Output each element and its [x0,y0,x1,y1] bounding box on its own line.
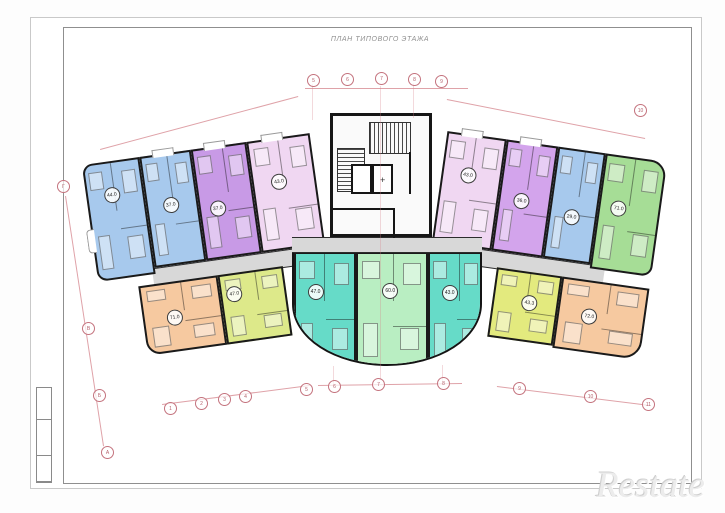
furniture [462,328,477,350]
partition-wall [607,285,612,313]
axis-bubble: Г [57,180,70,193]
balcony [461,128,484,139]
area-label: 47.0 [308,284,324,300]
furniture [567,283,590,297]
balcony [519,136,542,147]
furniture [197,156,213,175]
furniture [332,328,348,350]
center-apartments: 47.060.043.0 [292,250,482,366]
building-core: + [330,113,432,237]
area-label: 37.0 [162,196,180,214]
furniture [128,235,146,260]
furniture [235,216,252,239]
screenshot-root: ПЛАН ТИПОВОГО ЭТАЖА 44.037.037.043.071.0… [0,0,725,513]
furniture [608,163,625,183]
title-block-cell [37,456,51,482]
corridor [292,237,482,253]
furniture [363,323,378,357]
balcony [261,132,284,143]
axis-bubble: 8 [408,73,421,86]
balcony [151,147,174,158]
furniture [440,200,457,234]
title-block-cell [37,388,51,420]
furniture [433,261,447,279]
furniture [630,234,649,258]
apartment: 47.0 [294,252,356,366]
area-label: 37.0 [209,200,227,218]
partition-wall [578,152,585,197]
partition-wall [176,220,199,224]
furniture [230,315,246,337]
core-wall [409,152,411,194]
axis-bubble: А [101,446,114,459]
dimension-line [413,83,414,118]
furniture [400,328,419,350]
furniture [537,280,555,295]
axis-bubble: 5 [307,74,320,87]
partition-wall [457,319,482,320]
furniture [88,171,104,191]
area-label: 43.0 [270,173,288,191]
axis-bubble: 4 [239,390,252,403]
apartment: 71.0 [138,275,227,355]
partition-wall [180,282,185,310]
apartment: 43.0 [428,252,482,366]
partition-wall [228,206,253,210]
partition-wall [254,272,259,300]
furniture [263,207,281,241]
axis-bubble: 1 [164,402,177,415]
furniture [206,216,222,250]
furniture [155,223,170,257]
area-label: 72.0 [580,307,598,325]
area-label: 29.0 [562,208,580,226]
furniture [550,216,564,249]
furniture [264,312,283,327]
furniture [289,145,307,169]
partition-wall [222,147,229,192]
watermark: Restate [596,464,705,507]
furniture [598,225,615,260]
furniture [253,147,271,166]
furniture [334,263,349,285]
furniture [228,153,244,176]
axis-bubble: 11 [642,398,655,411]
core-wall [333,208,395,210]
title-block [36,387,52,483]
dimension-line [305,88,468,89]
apartment: 43.3 [487,267,562,346]
area-label: 43.0 [459,166,477,184]
furniture [464,263,478,285]
axis-bubble: 2 [195,397,208,410]
apartment: 60.0 [356,252,428,366]
furniture [98,235,115,271]
partition-wall [185,315,221,321]
furniture [562,321,583,344]
furniture [585,162,599,185]
area-label: 60.0 [382,283,398,299]
partition-wall [629,159,637,206]
area-label: 71.0 [610,200,628,218]
furniture [434,323,445,357]
furniture [536,155,551,178]
dimension-line [312,84,313,120]
furniture [500,274,517,287]
axis-bubble: 9 [513,382,526,395]
elevator-shaft [351,164,372,194]
furniture [145,163,160,182]
axis-bubble: 10 [634,104,647,117]
furniture [471,209,490,233]
axis-bubble: 3 [218,393,231,406]
furniture [449,140,466,159]
area-label: 71.0 [166,309,184,327]
furniture [152,325,171,347]
furniture [191,284,212,300]
area-label: 43.0 [442,285,458,301]
title-block-cell [37,420,51,456]
furniture [362,261,380,279]
partition-wall [527,145,534,190]
axis-bubble: 7 [375,72,388,85]
partition-wall [121,225,147,230]
area-label: 44.0 [103,186,121,204]
partition-wall [459,254,460,301]
furniture [121,169,138,194]
furniture [607,330,632,347]
furniture [616,292,640,308]
partition-wall [166,155,173,200]
partition-wall [324,254,325,301]
furniture [495,311,511,333]
partition-wall [469,199,496,204]
axis-bubble: 7 [372,378,385,391]
area-label: 36.0 [513,192,531,210]
partition-wall [326,319,354,320]
partition-wall [525,312,555,317]
apartment: 72.0 [552,276,649,360]
furniture [174,161,189,184]
furniture [146,289,167,302]
partition-wall [393,326,426,327]
axis-bubble: 5 [300,383,313,396]
dimension-line [380,86,381,380]
elevator-shaft: + [372,164,393,194]
page-title: ПЛАН ТИПОВОГО ЭТАЖА [300,36,460,43]
partition-wall [524,214,547,218]
axis-bubble: Б [93,389,106,402]
furniture [499,209,514,243]
core-wall [393,208,395,238]
furniture [295,207,315,231]
furniture [299,261,314,279]
furniture [261,274,279,289]
furniture [403,263,421,285]
area-label: 43.3 [520,294,538,312]
furniture [301,323,314,357]
axis-bubble: 8 [437,377,450,390]
axis-bubble: 10 [584,390,597,403]
furniture [482,147,499,170]
axis-bubble: 9 [435,75,448,88]
furniture [641,170,659,194]
axis-bubble: 6 [341,73,354,86]
furniture [508,148,523,167]
furniture [559,156,573,175]
axis-bubble: В [82,322,95,335]
apartment: 47.0 [217,266,292,345]
furniture [193,322,216,338]
staircase-icon [369,122,411,154]
axis-bubble: 6 [328,380,341,393]
furniture [529,318,548,333]
